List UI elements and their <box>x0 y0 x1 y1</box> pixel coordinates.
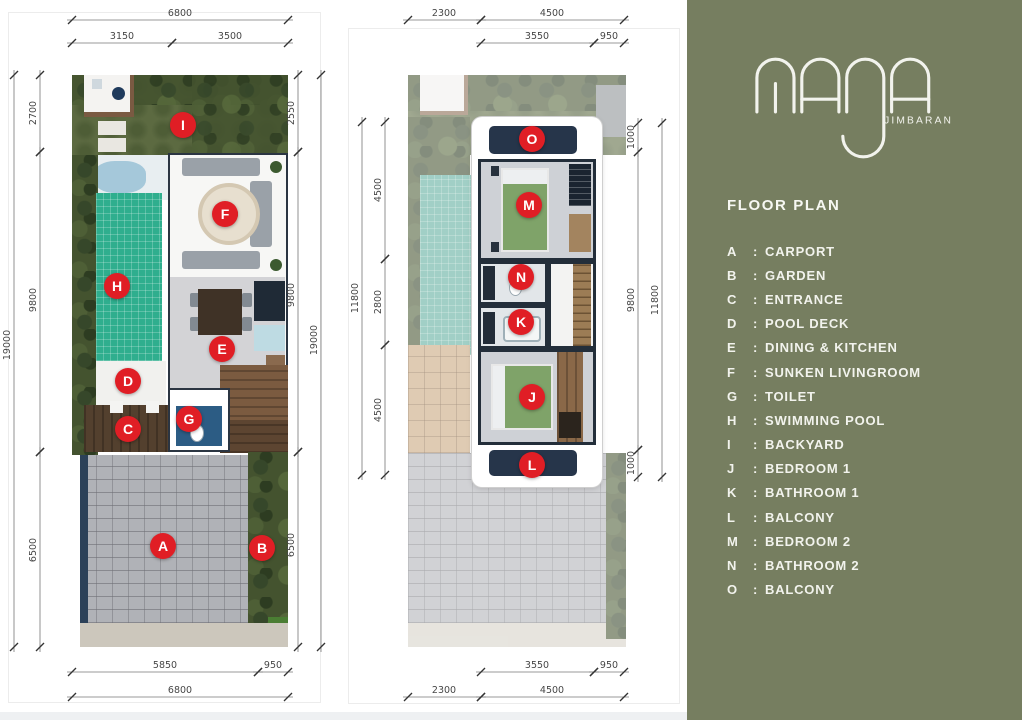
sofa <box>182 251 260 269</box>
legend-letter: D <box>727 316 753 331</box>
legend-name: ENTRANCE <box>765 292 844 307</box>
legend-name: POOL DECK <box>765 316 849 331</box>
legend-item-O: O:BALCONY <box>727 578 921 602</box>
ground-floor-plan: IFHEDCGAB <box>72 75 288 647</box>
vanity <box>483 312 495 344</box>
legend-name: BACKYARD <box>765 437 845 452</box>
room-marker-H: H <box>104 273 130 299</box>
legend-name: BEDROOM 2 <box>765 534 851 549</box>
legend-separator: : <box>753 292 765 307</box>
plant <box>270 259 282 271</box>
nightstand <box>491 242 499 252</box>
legend-name: CARPORT <box>765 244 835 259</box>
legend-item-F: F:SUNKEN LIVINGROOM <box>727 360 921 384</box>
logo-location-text: JIMBARAN <box>884 116 953 127</box>
room-marker-J: J <box>519 384 545 410</box>
legend-separator: : <box>753 510 765 525</box>
sofa <box>182 158 260 176</box>
legend-item-M: M:BEDROOM 2 <box>727 529 921 553</box>
entrance-post <box>110 401 123 413</box>
pillows <box>493 366 505 428</box>
legend-item-B: B:GARDEN <box>727 263 921 287</box>
legend-letter: B <box>727 268 753 283</box>
legend-item-G: G:TOILET <box>727 384 921 408</box>
room-marker-E: E <box>209 336 235 362</box>
nightstand <box>491 166 499 176</box>
legend-letter: N <box>727 558 753 573</box>
legend-letter: E <box>727 340 753 355</box>
legend-name: BALCONY <box>765 582 835 597</box>
legend-letter: J <box>727 461 753 476</box>
legend-item-C: C:ENTRANCE <box>727 287 921 311</box>
legend-separator: : <box>753 268 765 283</box>
legend-item-L: L:BALCONY <box>727 505 921 529</box>
legend-separator: : <box>753 534 765 549</box>
legend-item-A: A:CARPORT <box>727 239 921 263</box>
legend-letter: C <box>727 292 753 307</box>
dimension-line <box>477 16 485 24</box>
legend-letter: M <box>727 534 753 549</box>
logo-letter-a <box>802 59 839 112</box>
logo-letter-a2 <box>892 59 929 112</box>
legend-letter: K <box>727 485 753 500</box>
legend-letter: H <box>727 413 753 428</box>
backyard-patio <box>84 75 134 117</box>
legend-letter: A <box>727 244 753 259</box>
legend-separator: : <box>753 244 765 259</box>
legend-separator: : <box>753 558 765 573</box>
legend-name: BALCONY <box>765 510 835 525</box>
room-marker-F: F <box>212 201 238 227</box>
legend-separator: : <box>753 316 765 331</box>
pillows <box>503 170 547 184</box>
room-marker-D: D <box>115 368 141 394</box>
legend-name: BEDROOM 1 <box>765 461 851 476</box>
plant <box>270 161 282 173</box>
legend-letter: F <box>727 365 753 380</box>
bottom-strip <box>0 712 687 720</box>
legend-item-D: D:POOL DECK <box>727 312 921 336</box>
room-marker-C: C <box>115 416 141 442</box>
legend-separator: : <box>753 485 765 500</box>
room-marker-G: G <box>176 406 202 432</box>
dimension-line <box>620 16 628 24</box>
dimension-line <box>477 16 485 24</box>
wardrobe <box>569 164 591 206</box>
stepping-pad <box>98 138 126 152</box>
legend-separator: : <box>753 582 765 597</box>
room-marker-I: I <box>170 112 196 138</box>
legend-letter: I <box>727 437 753 452</box>
room-marker-A: A <box>150 533 176 559</box>
maja-logo: JIMBARAN <box>753 50 958 165</box>
patio-deco <box>92 79 102 89</box>
legend-letter: G <box>727 389 753 404</box>
legend-letter: L <box>727 510 753 525</box>
floor-plan-title: FLOOR PLAN <box>727 197 841 214</box>
legend-separator: : <box>753 437 765 452</box>
legend-separator: : <box>753 340 765 355</box>
room-marker-O: O <box>519 126 545 152</box>
info-panel: JIMBARAN FLOOR PLAN A:CARPORTB:GARDENC:E… <box>687 0 1022 720</box>
driveway-apron <box>80 623 288 647</box>
room-marker-N: N <box>508 264 534 290</box>
dimension-line <box>404 16 412 24</box>
legend-item-H: H:SWIMMING POOL <box>727 408 921 432</box>
legend-item-E: E:DINING & KITCHEN <box>727 336 921 360</box>
patio-faded <box>420 75 468 115</box>
entrance-post <box>146 401 159 413</box>
lagoon-water <box>94 161 146 193</box>
stepping-pad <box>98 121 126 135</box>
patio-table <box>112 87 125 100</box>
wood-deck-lower <box>220 420 288 453</box>
backyard-trees-right <box>192 75 288 155</box>
upper-floor-plan: OMNKJL <box>408 75 626 647</box>
legend-item-J: J:BEDROOM 1 <box>727 457 921 481</box>
legend-name: TOILET <box>765 389 816 404</box>
legend-name: BATHROOM 1 <box>765 485 859 500</box>
stairs <box>573 264 591 346</box>
room-marker-M: M <box>516 192 542 218</box>
legend-item-N: N:BATHROOM 2 <box>727 553 921 577</box>
wood-deck-faded <box>408 345 470 453</box>
chair <box>242 317 252 331</box>
hallway <box>548 261 596 349</box>
legend-list: A:CARPORTB:GARDENC:ENTRANCED:POOL DECKE:… <box>727 239 921 602</box>
garden-faded <box>606 453 626 639</box>
legend-name: BATHROOM 2 <box>765 558 859 573</box>
kitchen-appliance <box>254 325 285 351</box>
dresser <box>559 412 581 438</box>
legend-item-I: I:BACKYARD <box>727 433 921 457</box>
legend-name: DINING & KITCHEN <box>765 340 898 355</box>
logo-letter-j <box>843 59 884 157</box>
room-marker-L: L <box>519 452 545 478</box>
legend-item-K: K:BATHROOM 1 <box>727 481 921 505</box>
room-marker-K: K <box>508 309 534 335</box>
apron-faded <box>408 623 626 647</box>
legend-name: GARDEN <box>765 268 826 283</box>
legend-name: SWIMMING POOL <box>765 413 885 428</box>
room-marker-B: B <box>249 535 275 561</box>
legend-separator: : <box>753 413 765 428</box>
carport-side-wall <box>80 455 88 623</box>
vanity <box>483 266 495 300</box>
dining-table <box>198 289 242 335</box>
desk <box>569 214 591 252</box>
legend-separator: : <box>753 389 765 404</box>
legend-name: SUNKEN LIVINGROOM <box>765 365 921 380</box>
dimension-label: 4500 <box>540 8 564 19</box>
chair <box>242 293 252 307</box>
legend-letter: O <box>727 582 753 597</box>
kitchen-counter <box>254 281 285 321</box>
legend-separator: : <box>753 365 765 380</box>
dimension-label: 2300 <box>432 8 456 19</box>
legend-separator: : <box>753 461 765 476</box>
